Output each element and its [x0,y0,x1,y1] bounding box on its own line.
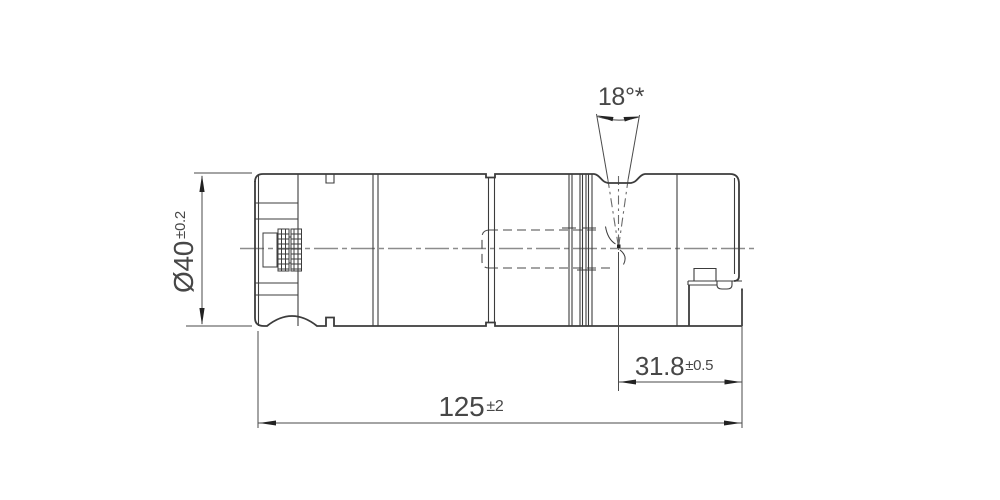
cone-axis-centerlines [608,176,628,253]
cone-apex-detail [606,227,626,265]
top-notch [326,174,334,183]
bottom-notch [326,318,334,327]
part-outline [255,174,742,326]
technical-drawing-svg: 18°* Ø40±0.2 31.8±0.5 125±2 [0,0,1000,500]
offset-dimension-label: 31.8±0.5 [635,351,713,381]
left-end-connector [263,229,302,271]
offset-dimension: 31.8±0.5 [619,252,743,391]
angle-dimension: 18°* [597,83,645,179]
section-divider-lines [255,174,677,326]
right-end-connector [688,178,742,289]
length-dimension-label: 125±2 [439,391,504,422]
diameter-dimension-label: Ø40±0.2 [168,211,199,293]
drawing-canvas: 18°* Ø40±0.2 31.8±0.5 125±2 [0,0,1000,500]
diameter-dimension: Ø40±0.2 [168,173,252,326]
angle-dimension-label: 18°* [598,83,645,111]
